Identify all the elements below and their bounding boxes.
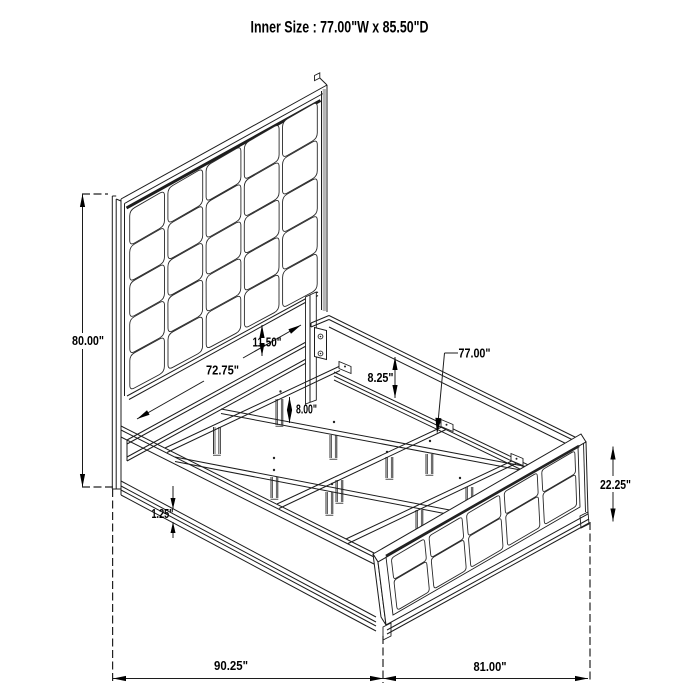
svg-text:80.00": 80.00" xyxy=(72,334,104,348)
svg-text:8.25": 8.25" xyxy=(368,371,394,385)
svg-text:Inner Size : 77.00"W x 85.50"D: Inner Size : 77.00"W x 85.50"D xyxy=(251,19,429,37)
svg-text:8.00": 8.00" xyxy=(296,403,317,417)
svg-text:72.75": 72.75" xyxy=(206,364,239,378)
svg-text:77.00": 77.00" xyxy=(459,347,491,361)
svg-text:11.50": 11.50" xyxy=(253,336,282,350)
svg-text:90.25": 90.25" xyxy=(214,659,248,673)
svg-text:81.00": 81.00" xyxy=(474,660,507,674)
svg-text:22.25": 22.25" xyxy=(600,478,631,492)
svg-text:1.25": 1.25" xyxy=(152,507,174,521)
